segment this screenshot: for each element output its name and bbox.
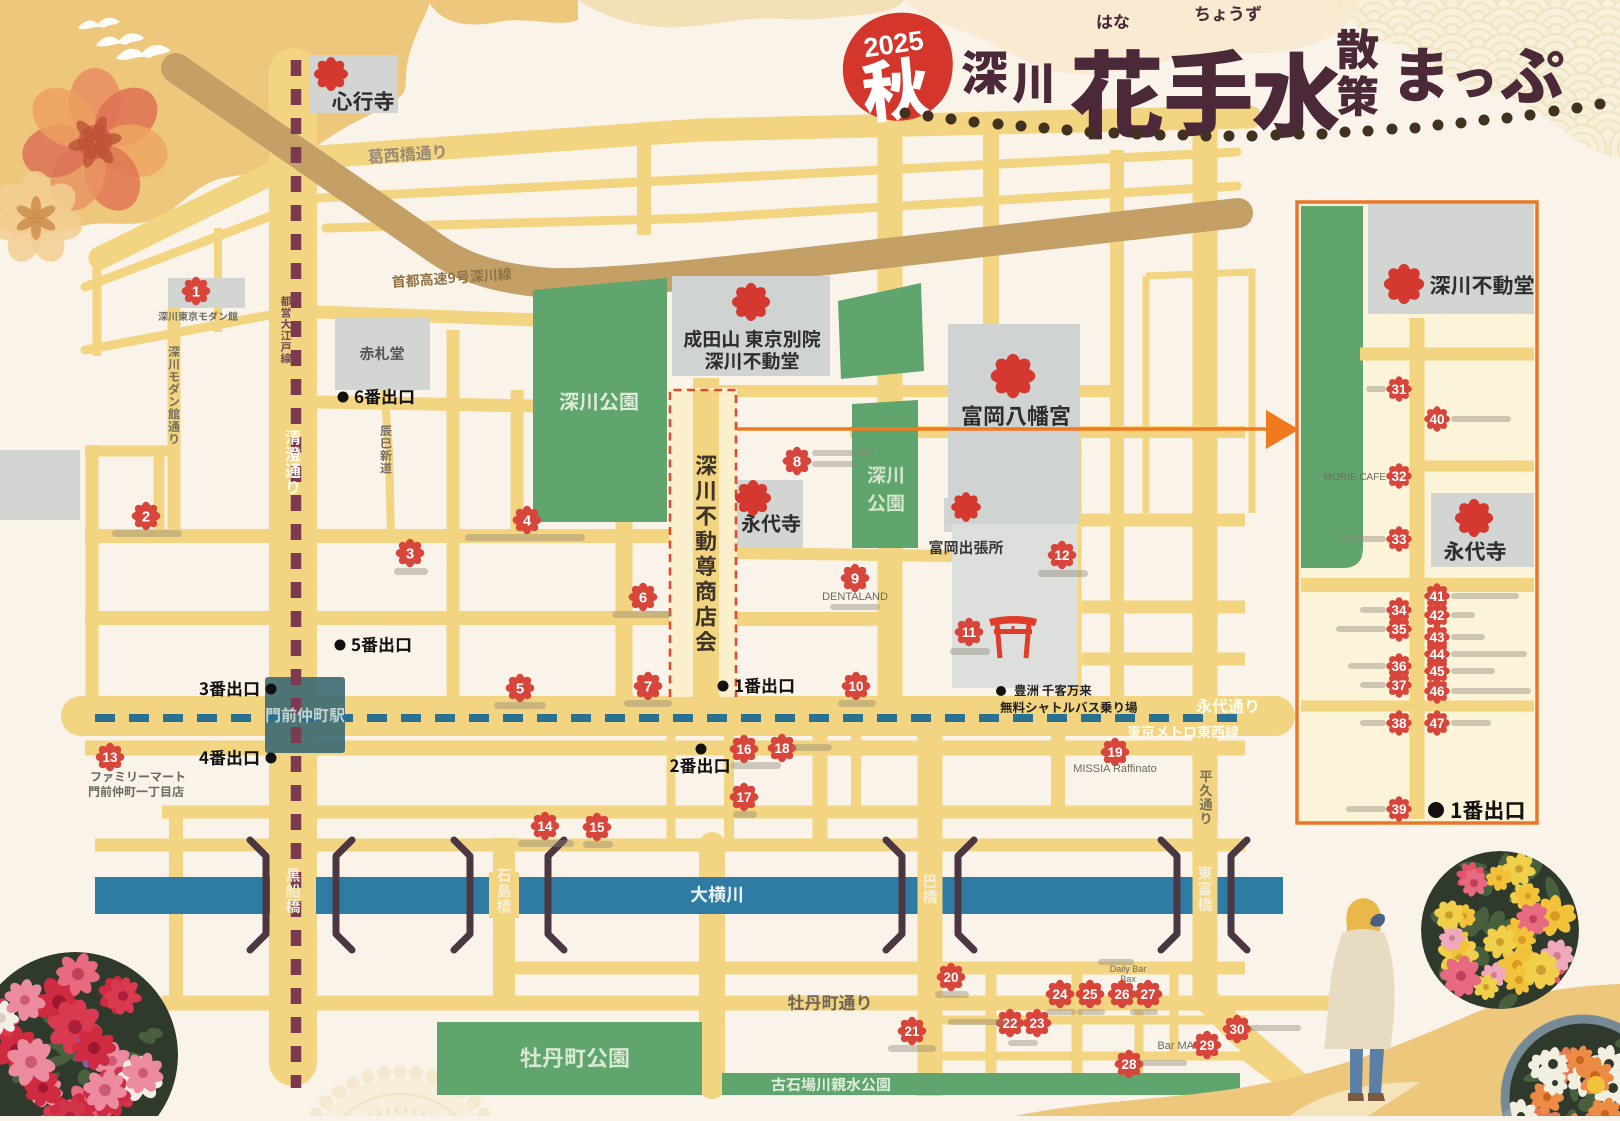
svg-text:31: 31 xyxy=(1391,382,1407,397)
svg-text:6: 6 xyxy=(639,589,647,606)
svg-text:3: 3 xyxy=(406,545,414,562)
svg-text:23: 23 xyxy=(1029,1016,1045,1031)
svg-text:12: 12 xyxy=(1054,548,1069,563)
svg-text:38: 38 xyxy=(1391,716,1407,731)
svg-text:45: 45 xyxy=(1429,664,1445,679)
svg-text:10: 10 xyxy=(848,679,863,694)
svg-text:47: 47 xyxy=(1429,716,1444,731)
svg-text:20: 20 xyxy=(943,970,958,985)
svg-text:Bar MA: Bar MA xyxy=(1157,1040,1194,1052)
svg-text:39: 39 xyxy=(1391,802,1406,817)
svg-text:32: 32 xyxy=(1391,469,1406,484)
svg-text:1: 1 xyxy=(192,283,200,300)
svg-text:17: 17 xyxy=(736,790,751,805)
svg-text:21: 21 xyxy=(904,1024,920,1039)
svg-text:15: 15 xyxy=(589,820,605,835)
svg-text:DENTALAND: DENTALAND xyxy=(822,591,888,603)
svg-text:41: 41 xyxy=(1429,589,1445,604)
svg-text:9: 9 xyxy=(851,570,859,587)
svg-text:25: 25 xyxy=(1082,987,1098,1002)
svg-text:16: 16 xyxy=(736,742,752,757)
svg-text:36: 36 xyxy=(1391,659,1407,674)
svg-text:Bax: Bax xyxy=(1120,974,1136,984)
svg-text:19: 19 xyxy=(1107,745,1122,760)
svg-text:29: 29 xyxy=(1199,1038,1214,1053)
svg-text:46: 46 xyxy=(1429,684,1445,699)
svg-text:MORIE CAFE: MORIE CAFE xyxy=(1324,472,1387,483)
svg-text:13: 13 xyxy=(102,750,118,765)
svg-text:28: 28 xyxy=(1121,1057,1137,1072)
svg-text:24: 24 xyxy=(1052,987,1068,1002)
svg-text:8: 8 xyxy=(793,453,801,470)
svg-text:37: 37 xyxy=(1391,678,1406,693)
svg-text:MISSIA Raffinato: MISSIA Raffinato xyxy=(1073,763,1157,775)
svg-text:4: 4 xyxy=(523,512,532,529)
svg-text:34: 34 xyxy=(1391,603,1407,618)
svg-text:33: 33 xyxy=(1391,532,1407,547)
svg-text:Daily Bar: Daily Bar xyxy=(1110,964,1147,974)
svg-text:14: 14 xyxy=(537,819,553,834)
svg-text:27: 27 xyxy=(1140,987,1155,1002)
svg-text:2: 2 xyxy=(142,508,150,525)
svg-text:7: 7 xyxy=(644,678,652,695)
svg-text:40: 40 xyxy=(1429,412,1444,427)
svg-text:18: 18 xyxy=(774,741,790,756)
svg-text:5: 5 xyxy=(516,680,524,697)
svg-text:11: 11 xyxy=(962,625,977,640)
svg-text:30: 30 xyxy=(1229,1022,1244,1037)
svg-text:42: 42 xyxy=(1429,608,1444,623)
svg-text:35: 35 xyxy=(1391,622,1407,637)
svg-text:26: 26 xyxy=(1114,987,1130,1002)
